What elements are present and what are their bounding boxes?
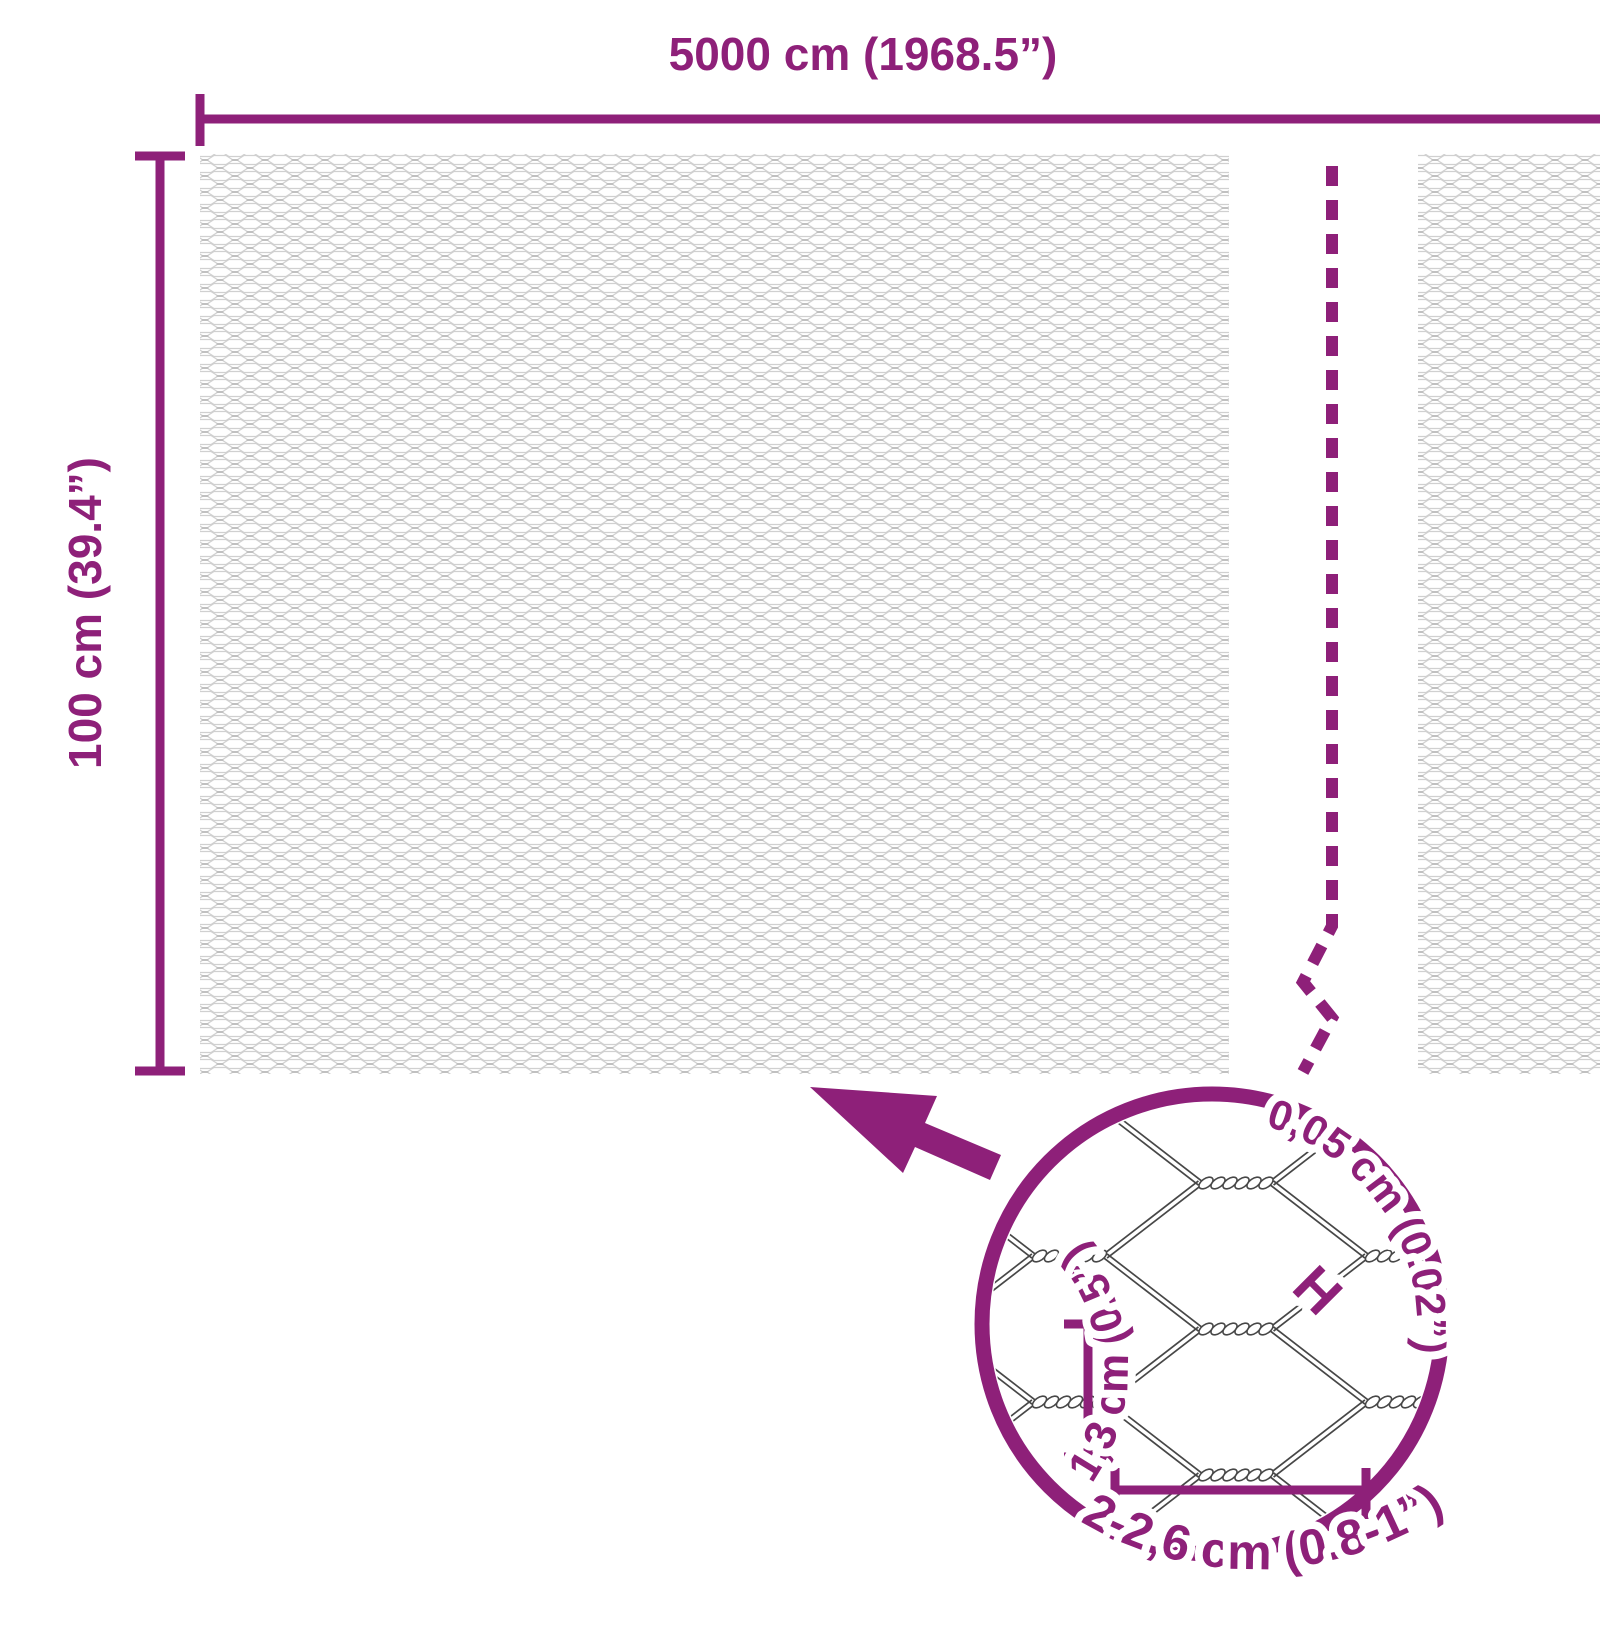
mesh-panel-left — [200, 154, 1229, 1074]
product-dimension-diagram: 5000 cm (1968.5”) 100 cm (39.4”) 0, — [40, 16, 1600, 1616]
mesh-panel-right — [1418, 154, 1600, 1074]
height-dimension-label: 100 cm (39.4”) — [59, 457, 111, 769]
width-dimension-line — [200, 94, 1600, 146]
magnifier: 0,05 cm (0.02”) 1,3 cm (0.5”) 2-2,6 cm (… — [604, 1035, 1600, 1580]
zoom-arrow-icon — [810, 1087, 1001, 1180]
width-dimension-label: 5000 cm (1968.5”) — [669, 28, 1058, 80]
break-line — [1303, 166, 1332, 1072]
height-dimension-line — [135, 156, 185, 1071]
